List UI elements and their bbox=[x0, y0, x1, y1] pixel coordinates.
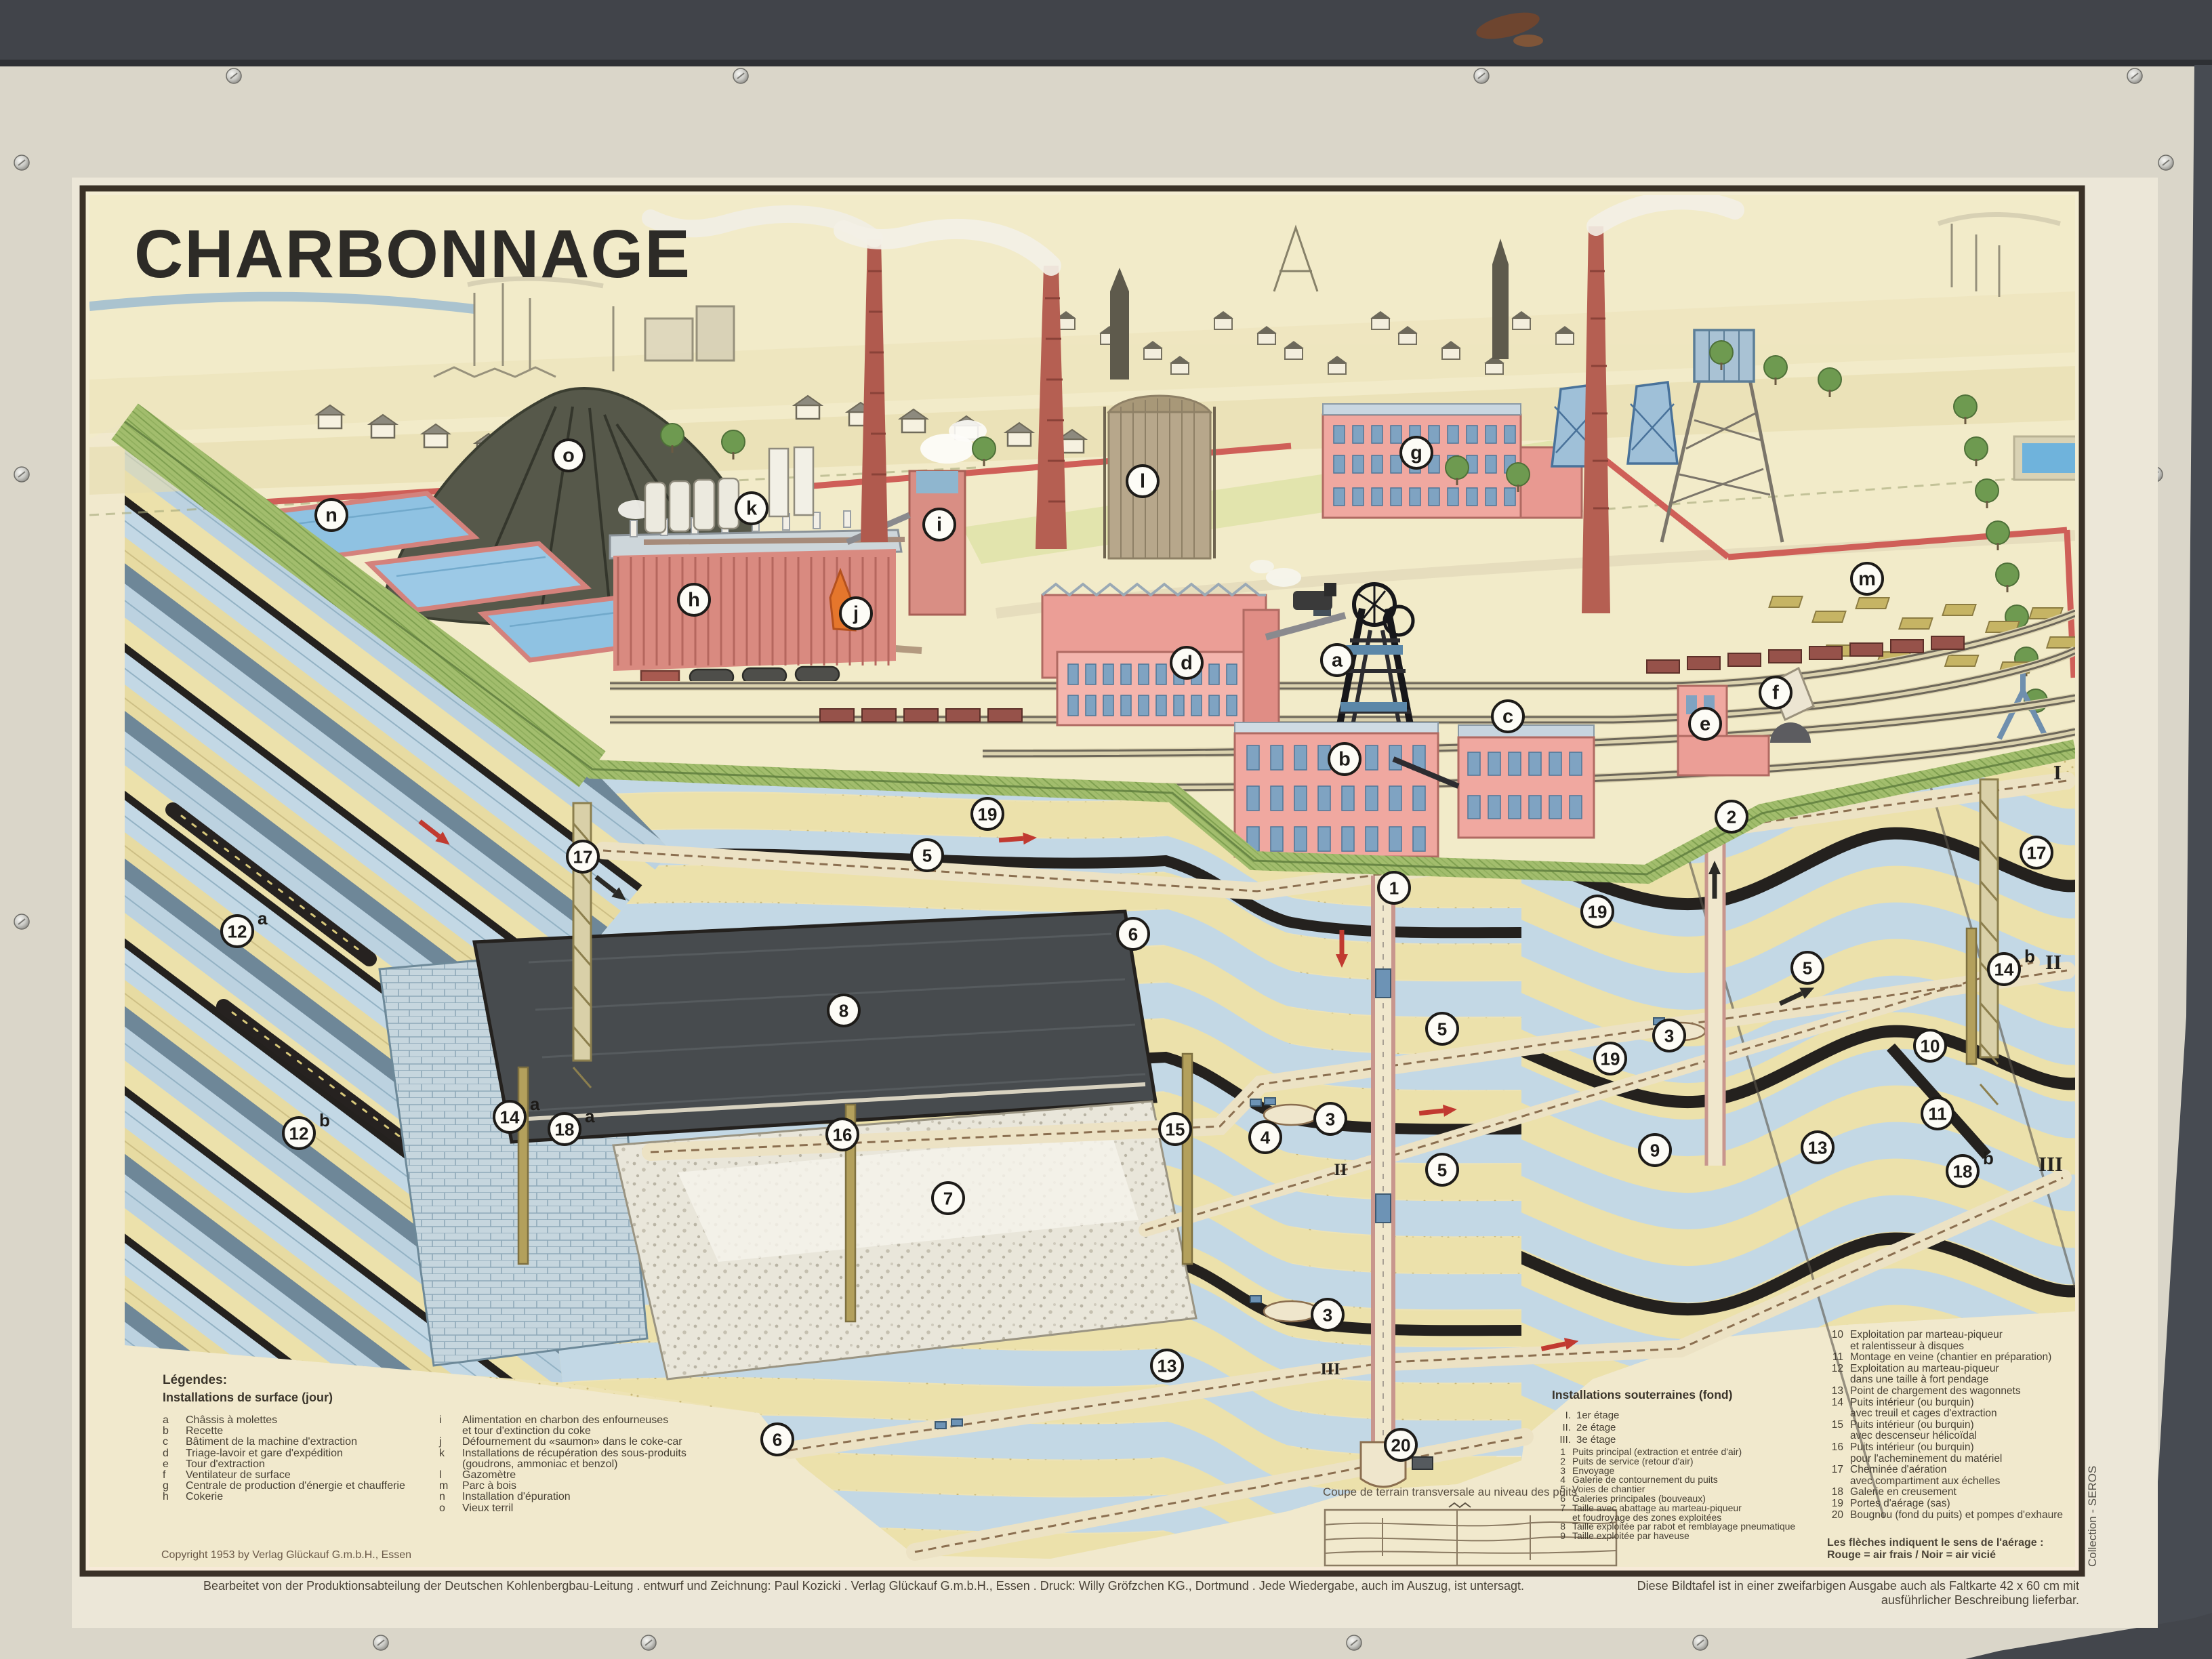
legend-item: 18Galerie en creusement bbox=[1818, 1487, 2089, 1498]
svg-text:3: 3 bbox=[1323, 1305, 1332, 1326]
tree bbox=[972, 437, 996, 460]
marker-a: a bbox=[1322, 644, 1353, 676]
svg-text:5: 5 bbox=[1803, 958, 1812, 979]
tree bbox=[1764, 356, 1787, 379]
coal-wagon bbox=[1931, 636, 1964, 649]
svg-text:a: a bbox=[1332, 650, 1343, 672]
marker-l: l bbox=[1127, 466, 1158, 497]
svg-text:a: a bbox=[530, 1094, 540, 1114]
marker-13: 13 bbox=[1151, 1350, 1183, 1381]
coal-wagon bbox=[946, 709, 980, 722]
svg-text:14: 14 bbox=[1994, 960, 2014, 980]
svg-text:1: 1 bbox=[1389, 878, 1399, 899]
tree bbox=[1965, 437, 1988, 460]
svg-text:h: h bbox=[688, 590, 700, 611]
level-label-III: III bbox=[2039, 1152, 2063, 1176]
legend-item: 17Cheminée d'aération avec compartiment … bbox=[1818, 1465, 2089, 1487]
svg-text:b: b bbox=[1983, 1148, 1994, 1168]
legend-item: bRecette bbox=[163, 1426, 447, 1437]
legend-item: 11Montage en veine (chantier en préparat… bbox=[1818, 1352, 2089, 1364]
svg-text:l: l bbox=[1140, 471, 1145, 493]
coal-wagon bbox=[1647, 660, 1679, 673]
timber-stack bbox=[1769, 596, 1802, 607]
marker-8: 8 bbox=[828, 995, 859, 1026]
copyright-note: Copyright 1953 by Verlag Glückauf G.m.b.… bbox=[161, 1549, 411, 1561]
svg-text:m: m bbox=[1858, 569, 1876, 590]
svg-text:j: j bbox=[853, 603, 859, 625]
coal-wagon bbox=[862, 709, 896, 722]
coal-wagon bbox=[820, 709, 854, 722]
photo-of-mining-poster: abcdefghijklmno123334555566789101112a12b… bbox=[0, 0, 2212, 1659]
svg-text:5: 5 bbox=[922, 846, 932, 866]
marker-1: 1 bbox=[1378, 872, 1410, 903]
marker-2: 2 bbox=[1716, 801, 1747, 832]
marker-19: 19 bbox=[1582, 896, 1613, 927]
svg-text:15: 15 bbox=[1166, 1120, 1185, 1140]
svg-text:4: 4 bbox=[1261, 1128, 1271, 1148]
svg-text:13: 13 bbox=[1808, 1138, 1828, 1158]
legend-item: 9Taille exploitée par haveuse bbox=[1547, 1532, 1831, 1541]
legend-item: 12Exploitation au marteau-piqueur dans u… bbox=[1818, 1364, 2089, 1386]
poster-title: CHARBONNAGE bbox=[134, 216, 691, 293]
marker-13: 13 bbox=[1802, 1132, 1833, 1163]
legend-item: 14Puits intérieur (ou burquin) avec treu… bbox=[1818, 1397, 2089, 1420]
marker-19: 19 bbox=[972, 798, 1003, 829]
legend-item: 16Puits intérieur (ou burquin) pour l'ac… bbox=[1818, 1442, 2089, 1465]
tree bbox=[1710, 341, 1733, 364]
svg-text:6: 6 bbox=[773, 1430, 782, 1450]
svg-text:5: 5 bbox=[1437, 1160, 1447, 1181]
svg-text:o: o bbox=[562, 445, 575, 467]
tree bbox=[1507, 463, 1530, 486]
legend-item: jDéfournement du «saumon» dans le coke-c… bbox=[439, 1437, 764, 1448]
svg-text:14: 14 bbox=[500, 1107, 520, 1128]
screw bbox=[2158, 155, 2173, 170]
legend-item: nInstallation d'épuration bbox=[439, 1492, 764, 1502]
coal-wagon bbox=[1769, 650, 1801, 663]
tree bbox=[1986, 521, 2009, 544]
timber-stack bbox=[1812, 611, 1845, 622]
svg-text:5: 5 bbox=[1437, 1019, 1447, 1040]
legend-item: gCentrale de production d'énergie et cha… bbox=[163, 1481, 447, 1492]
coal-wagon bbox=[1687, 657, 1720, 670]
inset-caption: Coupe de terrain transversale au niveau … bbox=[1323, 1486, 1577, 1499]
legend-item: 15Puits intérieur (ou burquin) avec desc… bbox=[1818, 1420, 2089, 1442]
screw bbox=[14, 914, 29, 929]
svg-text:17: 17 bbox=[573, 847, 593, 867]
svg-text:18: 18 bbox=[555, 1120, 575, 1140]
imprint-left: Bearbeitet von der Produktionsabteilung … bbox=[203, 1579, 1524, 1593]
timber-stack bbox=[1899, 618, 1932, 629]
legend-item: aChâssis à molettes bbox=[163, 1415, 447, 1426]
svg-text:2: 2 bbox=[1727, 807, 1736, 827]
legend-surface-subheading: Installations de surface (jour) bbox=[163, 1391, 333, 1405]
svg-text:c: c bbox=[1502, 706, 1513, 728]
marker-h: h bbox=[678, 584, 710, 615]
timber-stack bbox=[1856, 598, 1889, 609]
marker-4: 4 bbox=[1250, 1122, 1281, 1153]
legend-item: iAlimentation en charbon des enfourneuse… bbox=[439, 1415, 764, 1437]
tree bbox=[1446, 456, 1469, 479]
svg-text:12: 12 bbox=[289, 1124, 309, 1144]
svg-text:19: 19 bbox=[978, 804, 998, 825]
marker-e: e bbox=[1689, 708, 1721, 739]
legend-item: mParc à bois bbox=[439, 1481, 764, 1492]
gasometer bbox=[1105, 396, 1214, 558]
legend-item: dTriage-lavoir et gare d'expédition bbox=[163, 1448, 447, 1459]
marker-5: 5 bbox=[1792, 952, 1823, 983]
screw bbox=[641, 1635, 656, 1650]
coal-wagon bbox=[1728, 653, 1761, 666]
legend-item: eTour d'extraction bbox=[163, 1459, 447, 1470]
svg-text:7: 7 bbox=[943, 1189, 953, 1209]
svg-text:a: a bbox=[258, 908, 268, 928]
marker-f: f bbox=[1760, 677, 1791, 708]
tree bbox=[661, 424, 684, 447]
legend-item: 19Portes d'aérage (sas) bbox=[1818, 1498, 2089, 1510]
level-label-I: I bbox=[2053, 760, 2062, 784]
screw bbox=[733, 68, 748, 83]
marker-19: 19 bbox=[1595, 1043, 1626, 1074]
level-label-III: III bbox=[1320, 1360, 1340, 1378]
marker-6: 6 bbox=[1118, 918, 1149, 949]
marker-o: o bbox=[553, 440, 584, 471]
level-label-II: II bbox=[1334, 1161, 1347, 1179]
screw bbox=[373, 1635, 388, 1650]
svg-text:18: 18 bbox=[1953, 1162, 1973, 1182]
svg-text:a: a bbox=[585, 1106, 595, 1126]
svg-text:i: i bbox=[937, 514, 942, 536]
marker-5: 5 bbox=[1427, 1154, 1458, 1185]
legend-underground-heading: Installations souterraines (fond) bbox=[1552, 1388, 1732, 1402]
svg-text:17: 17 bbox=[2027, 843, 2047, 863]
marker-i: i bbox=[924, 509, 955, 540]
legend-item: cBâtiment de la machine d'extraction bbox=[163, 1437, 447, 1448]
svg-text:12: 12 bbox=[228, 922, 247, 942]
marker-k: k bbox=[736, 493, 767, 524]
legend-item: oVieux terril bbox=[439, 1503, 764, 1514]
svg-text:3: 3 bbox=[1664, 1026, 1674, 1046]
marker-10: 10 bbox=[1914, 1030, 1946, 1061]
recette-building bbox=[1235, 722, 1438, 857]
timber-stack bbox=[1942, 605, 1975, 615]
legend-underground-col1: 1Puits principal (extraction et entrée d… bbox=[1547, 1448, 1831, 1541]
svg-text:g: g bbox=[1410, 443, 1422, 464]
marker-11: 11 bbox=[1922, 1098, 1953, 1129]
marker-17: 17 bbox=[567, 841, 598, 872]
marker-20: 20 bbox=[1385, 1429, 1416, 1460]
legend-underground-levels: I.1er étageII.2e étageIII.3e étage bbox=[1547, 1410, 1750, 1446]
timber-stack bbox=[1945, 655, 1978, 666]
legend-item: 20Bougnou (fond du puits) et pompes d'ex… bbox=[1818, 1510, 2089, 1521]
tree bbox=[1818, 368, 1841, 391]
svg-text:19: 19 bbox=[1601, 1049, 1620, 1069]
marker-m: m bbox=[1851, 563, 1883, 594]
legend-item: kInstallations de récupération des sous-… bbox=[439, 1448, 764, 1470]
svg-text:8: 8 bbox=[839, 1001, 848, 1021]
level-label-II: II bbox=[2045, 950, 2062, 974]
marker-d: d bbox=[1171, 647, 1202, 678]
svg-text:3: 3 bbox=[1326, 1109, 1335, 1130]
svg-text:19: 19 bbox=[1588, 902, 1607, 922]
marker-c: c bbox=[1492, 701, 1523, 732]
marker-3: 3 bbox=[1315, 1103, 1346, 1134]
legend-item: II.2e étage bbox=[1547, 1422, 1750, 1434]
svg-text:13: 13 bbox=[1158, 1356, 1177, 1376]
screw bbox=[2127, 68, 2142, 83]
legend-item: 7Taille avec abattage au marteau-piqueur… bbox=[1547, 1504, 1831, 1523]
coal-wagon bbox=[904, 709, 938, 722]
legend-surface-col2: iAlimentation en charbon des enfourneuse… bbox=[439, 1415, 764, 1514]
coal-wagon bbox=[1809, 647, 1842, 659]
tree bbox=[722, 430, 745, 453]
svg-text:b: b bbox=[319, 1110, 330, 1130]
svg-text:n: n bbox=[325, 505, 337, 527]
svg-text:b: b bbox=[1338, 749, 1351, 771]
svg-text:6: 6 bbox=[1128, 924, 1138, 945]
tree bbox=[1954, 395, 1977, 418]
svg-text:d: d bbox=[1181, 653, 1193, 674]
legend-heading: Légendes: bbox=[163, 1373, 227, 1388]
marker-7: 7 bbox=[933, 1183, 964, 1214]
marker-9: 9 bbox=[1639, 1134, 1671, 1166]
marker-g: g bbox=[1401, 437, 1432, 468]
timber-stack bbox=[2047, 637, 2080, 648]
screw bbox=[1474, 68, 1489, 83]
svg-text:16: 16 bbox=[833, 1125, 853, 1145]
frame-top-band bbox=[0, 0, 2212, 65]
imprint-right: Diese Bildtafel ist in einer zweifarbige… bbox=[1624, 1579, 2079, 1607]
legend-item: III.3e étage bbox=[1547, 1434, 1750, 1446]
screw bbox=[226, 68, 241, 83]
legend-item: 13Point de chargement des wagonnets bbox=[1818, 1386, 2089, 1397]
svg-text:f: f bbox=[1772, 682, 1779, 704]
screw bbox=[14, 467, 29, 482]
marker-16: 16 bbox=[827, 1119, 858, 1150]
marker-j: j bbox=[840, 598, 872, 629]
marker-5: 5 bbox=[1427, 1013, 1458, 1044]
marker-b: b bbox=[1329, 743, 1360, 775]
tree bbox=[1996, 563, 2019, 586]
svg-text:9: 9 bbox=[1650, 1141, 1660, 1161]
legend-surface-col1: aChâssis à molettesbRecettecBâtiment de … bbox=[163, 1415, 447, 1503]
collection-label: Collection - SEROS bbox=[2086, 1466, 2100, 1567]
legend-item: hCokerie bbox=[163, 1492, 447, 1502]
screw bbox=[14, 155, 29, 170]
marker-17: 17 bbox=[2021, 837, 2052, 868]
screw bbox=[1347, 1635, 1361, 1650]
marker-3: 3 bbox=[1312, 1299, 1343, 1330]
svg-text:11: 11 bbox=[1928, 1104, 1947, 1124]
legend-item: lGazomètre bbox=[439, 1470, 764, 1481]
svg-text:e: e bbox=[1700, 714, 1711, 735]
marker-6: 6 bbox=[762, 1424, 793, 1455]
coal-wagon bbox=[1891, 640, 1923, 653]
legend-underground-col2: 10Exploitation par marteau-piqueur et ra… bbox=[1818, 1330, 2089, 1521]
marker-3: 3 bbox=[1654, 1020, 1685, 1051]
legend-item: I.1er étage bbox=[1547, 1410, 1750, 1422]
coal-wagon bbox=[988, 709, 1022, 722]
airflow-note: Les flèches indiquent le sens de l'aérag… bbox=[1827, 1537, 2043, 1561]
legend-item: 10Exploitation par marteau-piqueur et ra… bbox=[1818, 1330, 2089, 1352]
coal-wagon bbox=[1850, 643, 1883, 656]
marker-5: 5 bbox=[912, 840, 943, 871]
screw bbox=[1693, 1635, 1708, 1650]
svg-text:k: k bbox=[746, 498, 758, 520]
svg-text:10: 10 bbox=[1921, 1036, 1940, 1057]
marker-n: n bbox=[316, 499, 347, 531]
legend-item: fVentilateur de surface bbox=[163, 1470, 447, 1481]
marker-15: 15 bbox=[1160, 1113, 1191, 1145]
svg-text:20: 20 bbox=[1391, 1435, 1411, 1456]
tree bbox=[1975, 479, 1999, 502]
svg-text:b: b bbox=[2024, 946, 2035, 966]
